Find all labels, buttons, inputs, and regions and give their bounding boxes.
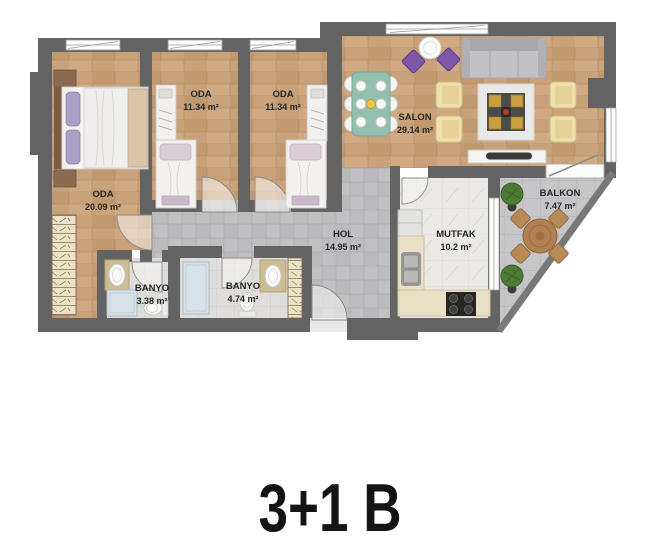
wall-bathroom1-top-b xyxy=(162,250,168,262)
room-area-living: 29.14 m² xyxy=(397,125,433,135)
room-area-bedroom-1: 20.09 m² xyxy=(85,202,121,212)
sofa xyxy=(462,38,546,78)
bed-blanket xyxy=(128,89,148,167)
room-area-kitchen: 10.2 m² xyxy=(440,242,471,252)
room-area-bedroom-2: 11.34 m² xyxy=(183,102,219,112)
wall-bedroom1-right-stub xyxy=(140,250,152,262)
room-area-balcony: 7.47 m² xyxy=(544,201,575,211)
shower xyxy=(107,290,137,316)
room-label-kitchen: MUTFAK xyxy=(436,229,476,240)
room-area-hall: 14.95 m² xyxy=(325,242,361,252)
dining-set xyxy=(345,72,398,136)
wall-hall-top-b xyxy=(238,200,255,212)
stove xyxy=(446,292,476,316)
room-label-bathroom-1: BANYO xyxy=(135,283,169,294)
room-area-bathroom-2: 4.74 m² xyxy=(227,294,258,304)
pillow xyxy=(66,92,80,126)
sink xyxy=(109,264,125,286)
hall-closet xyxy=(288,258,302,318)
room-label-balcony: BALKON xyxy=(540,188,581,199)
pillow xyxy=(66,130,80,164)
room-area-bathroom-1: 3.38 m² xyxy=(136,296,167,306)
room-label-living: SALON xyxy=(398,112,431,123)
wall-bathroom2-top-a xyxy=(180,246,222,258)
room-label-bathroom-2: BANYO xyxy=(226,281,260,292)
wall-bedroom3-living xyxy=(327,36,342,212)
side-table xyxy=(419,37,441,59)
pillow xyxy=(160,144,191,160)
nightstand xyxy=(54,70,76,87)
room-label-hall: HOL xyxy=(333,229,353,240)
shower xyxy=(183,262,209,314)
wall-left xyxy=(38,38,52,332)
sink xyxy=(401,252,421,286)
wall-entrance-block xyxy=(347,318,418,340)
nightstand xyxy=(54,170,76,187)
single-bed xyxy=(286,140,326,208)
wall-bedroom2-bedroom3 xyxy=(238,52,250,200)
pillow xyxy=(290,144,321,160)
tv xyxy=(486,153,532,160)
sink xyxy=(265,265,281,287)
wardrobe xyxy=(52,215,76,315)
plan-type-title: 3+1 B xyxy=(73,474,588,542)
coffee-table-set xyxy=(478,84,534,140)
table-centerpiece xyxy=(367,100,376,109)
wall-bottom-left xyxy=(38,318,310,332)
floorplan-page: ODA 20.09 m² ODA 11.34 m² ODA 11.34 m² S… xyxy=(0,0,660,555)
double-bed xyxy=(54,87,148,169)
room-area-bedroom-3: 11.34 m² xyxy=(265,102,301,112)
single-bed xyxy=(156,140,196,208)
bed-footer xyxy=(162,196,189,205)
room-label-bedroom-2: ODA xyxy=(190,89,211,100)
wall-bathroom2-right xyxy=(302,246,312,318)
wall-bathroom2-top-b xyxy=(254,246,302,258)
wall-bathroom1-bathroom2 xyxy=(168,246,180,318)
wall-right-pillar xyxy=(588,78,616,108)
room-label-bedroom-1: ODA xyxy=(92,189,113,200)
room-label-bedroom-3: ODA xyxy=(272,89,293,100)
floorplan-drawing: ODA 20.09 m² ODA 11.34 m² ODA 11.34 m² S… xyxy=(0,0,660,470)
tv-unit xyxy=(468,150,546,163)
wall-left-pillar xyxy=(30,72,38,155)
bed-footer xyxy=(292,196,319,205)
counter-bottom xyxy=(398,290,490,316)
